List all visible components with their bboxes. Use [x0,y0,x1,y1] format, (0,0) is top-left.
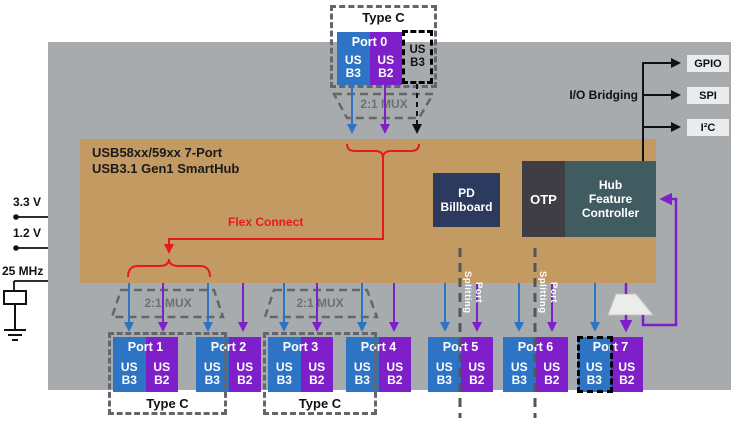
rail-1v2-node [13,245,19,251]
hub-title-line2: USB3.1 Gen1 SmartHub [92,161,239,177]
io-bridging-label: I/O Bridging [556,88,638,102]
spi-box: SPI [687,87,729,104]
gpio-label: GPIO [694,58,722,70]
hfc-line1: Hub [599,178,622,192]
port-5-block: USB3 USB2 Port 5 [428,337,493,392]
mux-port12-label: 2:1 MUX [130,296,206,310]
hub-feature-controller-block: Hub Feature Controller [565,161,656,237]
otp-block: OTP [522,161,565,237]
rail-1v2-label: 1.2 V [13,226,41,240]
port6-label: Port 6 [503,340,568,354]
port7-usb3-dashed-outline [577,336,613,393]
port-6-block: USB3 USB2 Port 6 [503,337,568,392]
rail-3v3-label: 3.3 V [13,195,41,209]
port0-alt-b3-line2: B3 [410,57,425,70]
type-c-label-ports34: Type C [266,396,374,411]
rail-3v3-node [13,214,19,220]
hfc-line3: Controller [582,206,639,220]
crystal-symbol [4,291,26,330]
type-c-label-ports12: Type C [111,396,224,411]
pd-billboard-block: PD Billboard [433,173,500,227]
type-c-box-ports34: Type C [263,332,377,415]
hub-title: USB58xx/59xx 7-Port USB3.1 Gen1 SmartHub [92,145,239,177]
i2c-label: I²C [701,122,716,134]
mux-upstream-label: 2:1 MUX [346,97,422,111]
port0-alt-usb3-box: US B3 [402,30,433,84]
flex-connect-label: Flex Connect [228,215,303,229]
pd-billboard-line2: Billboard [440,200,492,214]
clock-25mhz-label: 25 MHz [2,264,43,278]
i2c-box: I²C [687,119,729,136]
spi-label: SPI [699,90,717,102]
otp-label: OTP [530,192,557,207]
pd-billboard-line1: PD [458,186,475,200]
smarthub-block-diagram: USB58xx/59xx 7-Port USB3.1 Gen1 SmartHub… [0,0,735,422]
type-c-box-ports12: Type C [108,332,227,415]
type-c-label-top: Type C [333,10,434,25]
hub-title-line1: USB58xx/59xx 7-Port [92,145,239,161]
hfc-line2: Feature [589,192,632,206]
port-splitting-label-p5: Port Splitting [462,260,484,324]
port5-label: Port 5 [428,340,493,354]
ground-symbol [4,330,26,340]
gpio-box: GPIO [687,55,729,72]
port-splitting-label-p6: Port Splitting [537,260,559,324]
mux-port34-label: 2:1 MUX [282,296,358,310]
port0-alt-b3-line1: US [410,44,426,57]
